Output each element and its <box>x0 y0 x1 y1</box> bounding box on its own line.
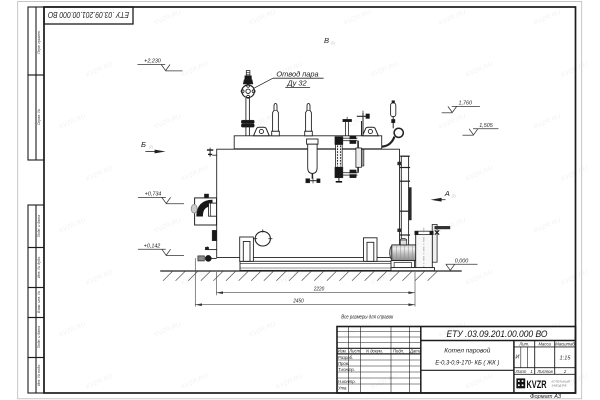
svg-text:KVZR: KVZR <box>527 379 547 391</box>
svg-text:Котел паровой: Котел паровой <box>444 348 491 355</box>
svg-text:N докум.: N докум. <box>366 349 383 354</box>
svg-text:(2): (2) <box>452 194 456 198</box>
svg-text:(2): (2) <box>149 145 153 149</box>
svg-text:Перв. примен.: Перв. примен. <box>37 30 41 54</box>
svg-text:Е-0,3-0,9-170- КБ ( ЖК ): Е-0,3-0,9-170- КБ ( ЖК ) <box>435 361 499 367</box>
svg-text:Справ. №: Справ. № <box>37 109 41 125</box>
svg-text:Формат А3: Формат А3 <box>530 394 561 400</box>
svg-text:Подп.: Подп. <box>393 349 404 354</box>
svg-text:Изм.: Изм. <box>338 349 347 354</box>
svg-text:+0,734: +0,734 <box>145 192 162 198</box>
svg-text:1: 1 <box>530 369 532 374</box>
svg-text:2220: 2220 <box>313 287 325 293</box>
svg-text:+0,142: +0,142 <box>144 243 161 249</box>
svg-text:Подп. и дата: Подп. и дата <box>37 215 41 238</box>
svg-text:Разраб.: Разраб. <box>338 355 353 360</box>
svg-text:Дата: Дата <box>409 349 422 354</box>
svg-text:1,760: 1,760 <box>459 101 473 107</box>
svg-text:1,505: 1,505 <box>479 123 493 129</box>
svg-text:2450: 2450 <box>292 298 304 304</box>
svg-text:Масштаб: Масштаб <box>555 341 575 346</box>
svg-text:Лит.: Лит. <box>518 341 529 346</box>
svg-text:Лист: Лист <box>348 349 360 354</box>
svg-text:Пров.: Пров. <box>338 361 349 366</box>
svg-text:ЕТУ .03.09.201.00.000 ВО: ЕТУ .03.09.201.00.000 ВО <box>447 329 548 340</box>
svg-text:А: А <box>444 189 450 198</box>
svg-text:Н.контр.: Н.контр. <box>338 379 356 384</box>
svg-text:Взам. инв. №: Взам. инв. № <box>37 291 41 313</box>
svg-text:Утв.: Утв. <box>338 386 348 391</box>
svg-text:Лист: Лист <box>515 369 527 374</box>
svg-text:0,000: 0,000 <box>455 259 469 265</box>
svg-text:Подп. и дата: Подп. и дата <box>37 326 41 349</box>
svg-text:ЗАВОД РФ: ЗАВОД РФ <box>552 384 567 388</box>
svg-text:В: В <box>324 36 329 45</box>
svg-text:Отвод пара: Отвод пара <box>276 70 318 79</box>
svg-text:Инв. № дубл.: Инв. № дубл. <box>37 256 41 278</box>
svg-text:ЕТУ .03.09.201.00.000 ВО: ЕТУ .03.09.201.00.000 ВО <box>48 10 129 19</box>
svg-text:И: И <box>515 355 519 361</box>
svg-text:Инв. № подл.: Инв. № подл. <box>37 364 41 386</box>
svg-text:+2,230: +2,230 <box>144 59 161 65</box>
svg-text:Ду 32: Ду 32 <box>286 79 306 88</box>
svg-text:Масса: Масса <box>539 341 552 346</box>
svg-text:Б: Б <box>141 140 146 149</box>
svg-text:1:15: 1:15 <box>560 356 572 362</box>
svg-text:Все размеры для справок: Все размеры для справок <box>341 315 393 321</box>
svg-text:Листов: Листов <box>536 369 553 374</box>
svg-text:Т.контр.: Т.контр. <box>338 367 355 372</box>
svg-text:(2): (2) <box>331 41 335 45</box>
